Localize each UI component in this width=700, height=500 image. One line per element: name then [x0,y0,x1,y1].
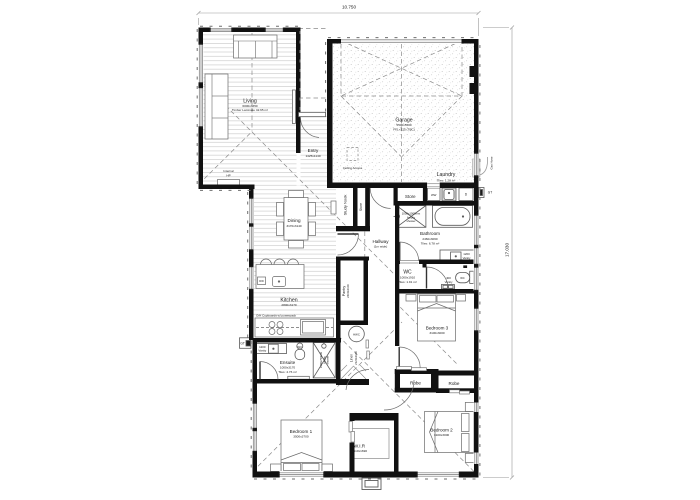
svg-text:Hallway: Hallway [372,239,389,244]
svg-text:FFL+225 (TBC): FFL+225 (TBC) [393,128,415,132]
svg-text:6000x3650: 6000x3650 [242,104,258,108]
svg-text:Robe: Robe [449,381,460,386]
svg-text:Gas Hose: Gas Hose [490,156,494,169]
svg-text:1000x1910: 1000x1910 [400,275,416,279]
svg-text:Study Nook: Study Nook [343,195,348,216]
svg-text:(1m wide): (1m wide) [374,245,388,249]
svg-text:Ensuite: Ensuite [280,360,296,365]
svg-text:1425x1140: 1425x1140 [305,154,320,158]
svg-text:1000x3170: 1000x3170 [280,365,296,369]
svg-text:Bedroom 2: Bedroom 2 [430,427,453,432]
svg-text:HP: HP [226,174,230,178]
svg-text:Store: Store [359,203,363,211]
svg-text:Tiles: 1.28 m²: Tiles: 1.28 m² [437,178,456,182]
svg-text:3100x3000: 3100x3000 [429,331,445,335]
svg-text:Bathroom: Bathroom [420,231,440,236]
svg-text:Tiles: 1.91 m²: Tiles: 1.91 m² [398,280,417,284]
svg-text:Vanity: Vanity [445,280,453,284]
svg-text:Vanity: Vanity [463,256,471,260]
svg-text:Internal: Internal [223,169,234,173]
svg-text:GT: GT [488,190,492,194]
svg-text:Timber Laminate 42.65 m²: Timber Laminate 42.65 m² [232,108,268,112]
svg-text:2800x3170: 2800x3170 [281,303,297,307]
svg-text:Tiles: 4.76 m²: Tiles: 4.76 m² [278,370,297,374]
svg-text:shower: shower [406,219,415,223]
svg-text:2460x3060: 2460x3060 [422,237,438,241]
svg-text:Vanity: Vanity [258,349,266,353]
svg-text:Dining: Dining [287,218,300,223]
svg-text:DW: DW [259,279,264,283]
svg-text:2110x1690: 2110x1690 [352,449,367,453]
svg-text:3100x3000: 3100x3000 [434,433,450,437]
svg-text:Ceiling Access: Ceiling Access [343,166,363,170]
svg-text:Laundry: Laundry [437,172,456,178]
svg-text:Entry: Entry [308,148,319,153]
svg-text:WW: WW [431,193,437,197]
svg-text:GT: GT [240,341,244,345]
svg-text:17.030: 17.030 [505,243,510,257]
svg-text:2120x1100: 2120x1100 [354,351,358,365]
svg-text:Robe: Robe [410,381,421,386]
svg-text:HWC: HWC [353,333,360,337]
svg-text:Tiles: 6.78 m²: Tiles: 6.78 m² [421,241,440,245]
svg-text:WC: WC [460,276,465,280]
svg-text:5500x5500: 5500x5500 [396,123,412,127]
svg-text:W.I.R: W.I.R [354,443,366,448]
svg-text:shower: shower [326,356,330,365]
svg-text:10.750: 10.750 [342,5,356,10]
svg-text:3170x3140: 3170x3140 [286,224,302,228]
svg-text:O/H Cupboards w/ powerpack: O/H Cupboards w/ powerpack [256,313,297,317]
svg-text:3500x3700: 3500x3700 [293,435,309,439]
svg-text:Bedroom 3: Bedroom 3 [426,325,449,330]
svg-text:Bedroom 1: Bedroom 1 [290,429,313,434]
svg-text:1400x750mm: 1400x750mm [319,351,323,368]
svg-text:Store: Store [405,194,416,199]
svg-text:2400x1100: 2400x1100 [346,284,350,298]
svg-text:WC: WC [298,345,303,349]
